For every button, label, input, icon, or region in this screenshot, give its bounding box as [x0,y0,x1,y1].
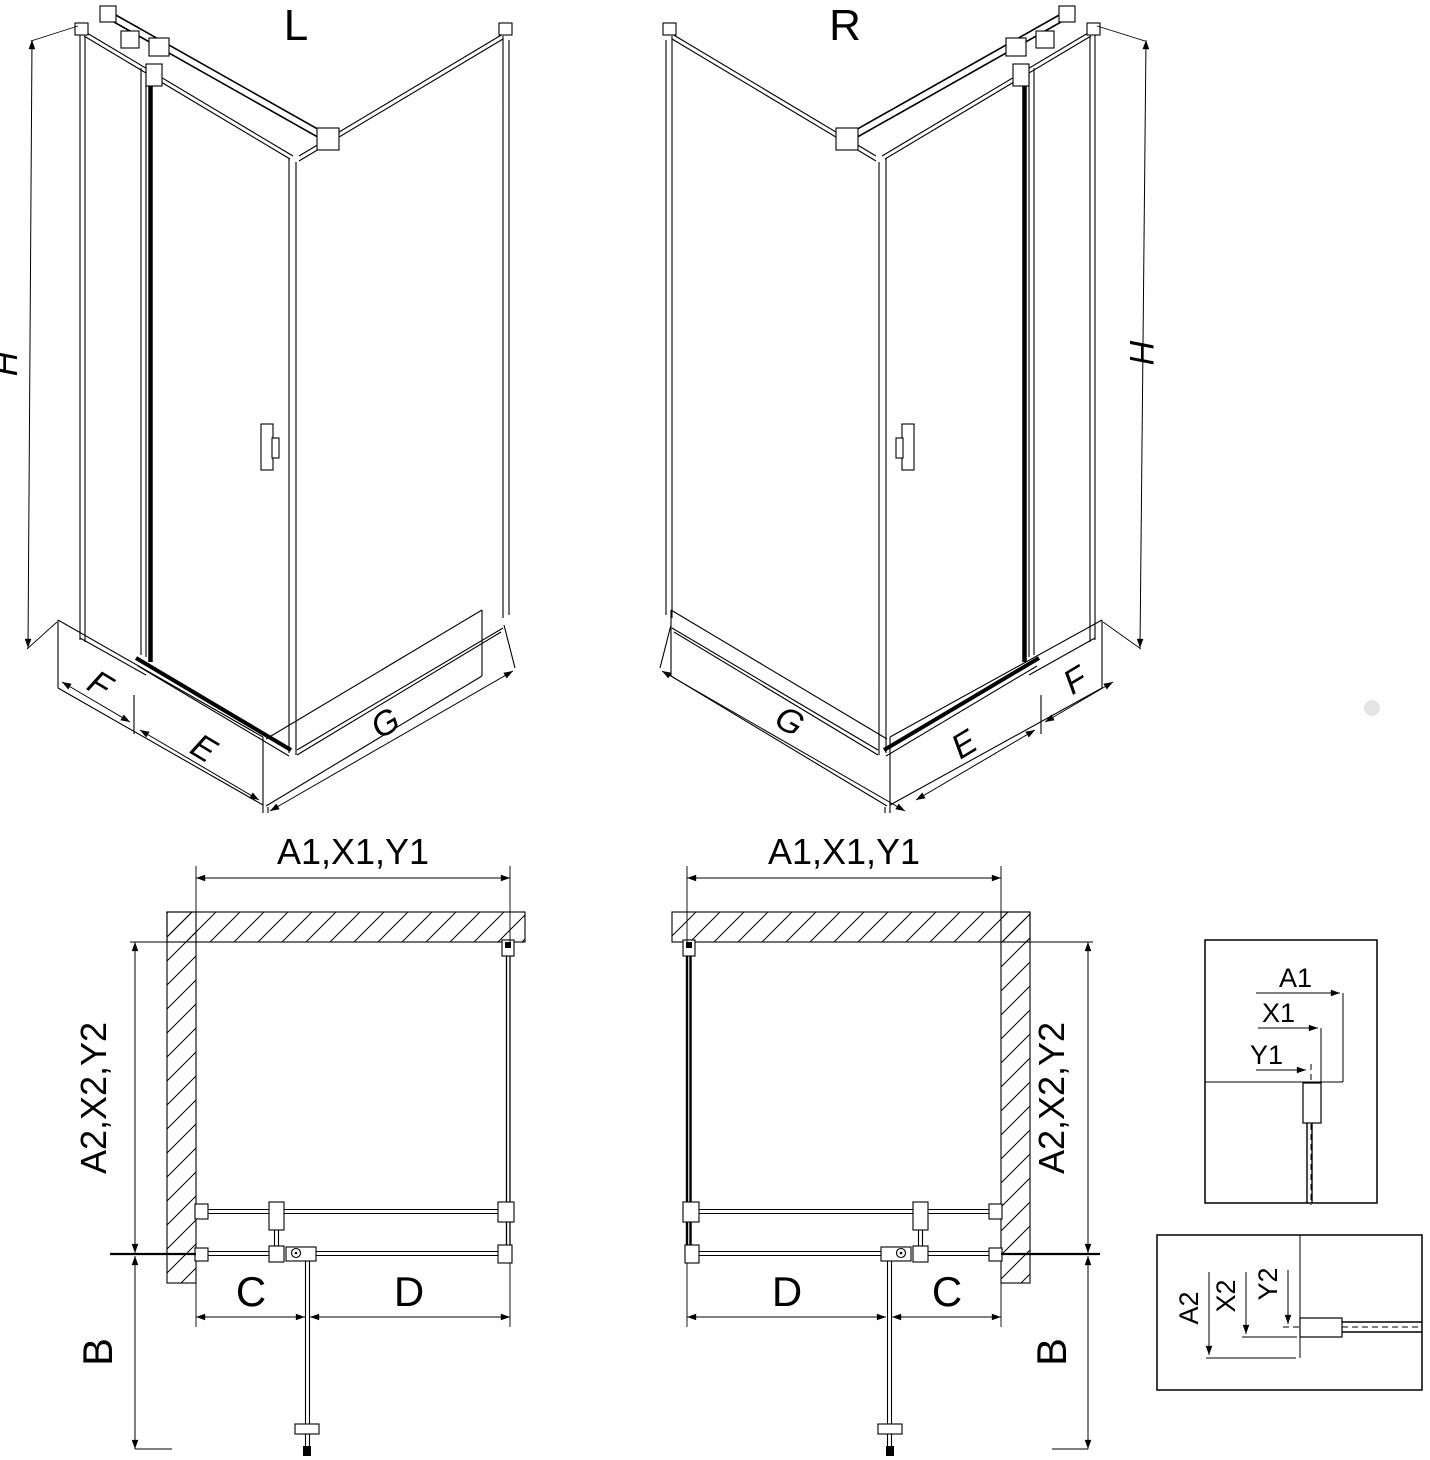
lp-wall-left [167,912,196,1283]
rp-d-label: D [772,1268,802,1315]
rp-open-door [888,1261,892,1448]
rp-wall-top [672,912,1030,942]
lp-c-label: C [236,1268,266,1315]
right-isometric-view: R H F E G [660,1,1160,813]
detail-a2-label: A2 [1174,1291,1204,1324]
lp-front-connectors [195,1245,512,1263]
technical-drawing-page: L H F E G [0,0,1430,1460]
lp-door-tip [303,1446,311,1456]
r-e-label: E [945,722,984,766]
l-width-dimensions [62,671,513,811]
shower-enclosure-diagram: L H F E G [0,0,1430,1460]
r-glass-panels-outline [660,30,1102,813]
rp-c-label: C [932,1268,962,1315]
rp-bar-connectors [683,1202,1002,1230]
detail-y1-label: Y1 [1250,1040,1283,1070]
detail-y2-label: Y2 [1253,1267,1283,1300]
rp-wall-right [1001,912,1030,1283]
r-view-title: R [829,1,861,50]
r-h-dimension [1097,26,1146,649]
l-glass-panels-outline [58,30,515,813]
lp-b-label: B [74,1338,121,1366]
detail-a1-label: A1 [1279,963,1312,993]
rp-door-tip [886,1446,894,1456]
lp-bar-connectors [195,1202,514,1230]
r-h-label: H [1122,340,1160,365]
l-h-label: H [0,351,25,376]
rp-side-dim-label: A2,X2,Y2 [1031,1022,1072,1174]
r-door-handle [896,424,914,470]
rp-b-label: B [1028,1338,1075,1366]
rp-front-connectors [685,1245,1002,1263]
lp-support-bar [208,1210,498,1247]
detail-x1-label: X1 [1262,998,1295,1028]
rp-door-handle [878,1424,902,1434]
detail-box-bottom: A2 X2 Y2 [1157,1235,1422,1390]
watermark-dot [1364,700,1380,716]
l-f-label: F [81,663,120,707]
r-g-label: G [769,698,811,744]
l-e-label: E [184,726,223,770]
lp-front-rail [208,1252,498,1256]
r-width-dimensions [662,671,1113,811]
l-h-dimension [27,26,78,649]
l-view-title: L [284,1,308,50]
right-plan-view: A1,X1,Y1 A2,X2,Y2 C D B [672,831,1100,1456]
lp-width-dim-label: A1,X1,Y1 [277,831,429,872]
lp-open-door [306,1261,310,1448]
lp-side-dim-label: A2,X2,Y2 [73,1022,114,1174]
l-g-label: G [365,700,407,746]
lp-d-label: D [394,1268,424,1315]
l-door-handle [261,424,279,470]
rp-support-bar [699,1210,989,1247]
rp-front-rail [699,1252,989,1256]
rp-width-dim-label: A1,X1,Y1 [768,831,920,872]
detail-x2-label: X2 [1211,1279,1241,1312]
left-plan-view: A1,X1,Y1 A2,X2,Y2 C D B [73,831,525,1456]
lp-wall-top [167,912,525,942]
left-isometric-view: L H F E G [0,1,515,813]
lp-door-handle [295,1424,319,1434]
detail-box-top: A1 X1 Y1 [1205,940,1377,1205]
